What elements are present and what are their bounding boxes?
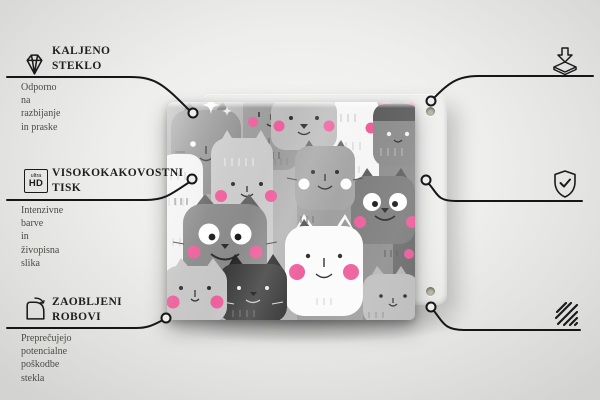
cat-pattern-print <box>167 102 415 320</box>
rounded-corner-icon <box>22 296 49 323</box>
callout-title: ZAOBLJENI ROBOVI <box>52 295 122 326</box>
ultra-hd-icon: ultra HD <box>24 169 48 193</box>
cat <box>373 102 415 166</box>
polished-edges-icon <box>550 299 580 327</box>
product-infographic: KALJENO STEKLO Odporno na razbijanje in … <box>0 0 600 400</box>
anti-slip-pad-icon <box>550 46 580 76</box>
diamond-icon <box>21 51 48 78</box>
cat <box>351 168 415 244</box>
callout-title: KALJENO STEKLO <box>52 44 110 75</box>
mounting-hole <box>426 107 435 116</box>
cat <box>271 102 337 150</box>
shield-check-icon <box>551 169 579 199</box>
callout-subtitle: Odporno na razbijanje in praske <box>21 81 60 134</box>
cat <box>167 258 227 320</box>
callout-title: VISOKOKAKOVOSTNI TISK <box>52 166 183 197</box>
ultra-hd-icon-text: HD <box>29 179 43 189</box>
cat <box>285 214 363 316</box>
mounting-hole <box>426 287 435 296</box>
callout-subtitle: Intenzivne barve in živopisna slika <box>21 204 63 270</box>
glass-panel <box>167 102 415 320</box>
callout-subtitle: Preprečujejo potencialne poškodbe stekla <box>21 332 72 385</box>
